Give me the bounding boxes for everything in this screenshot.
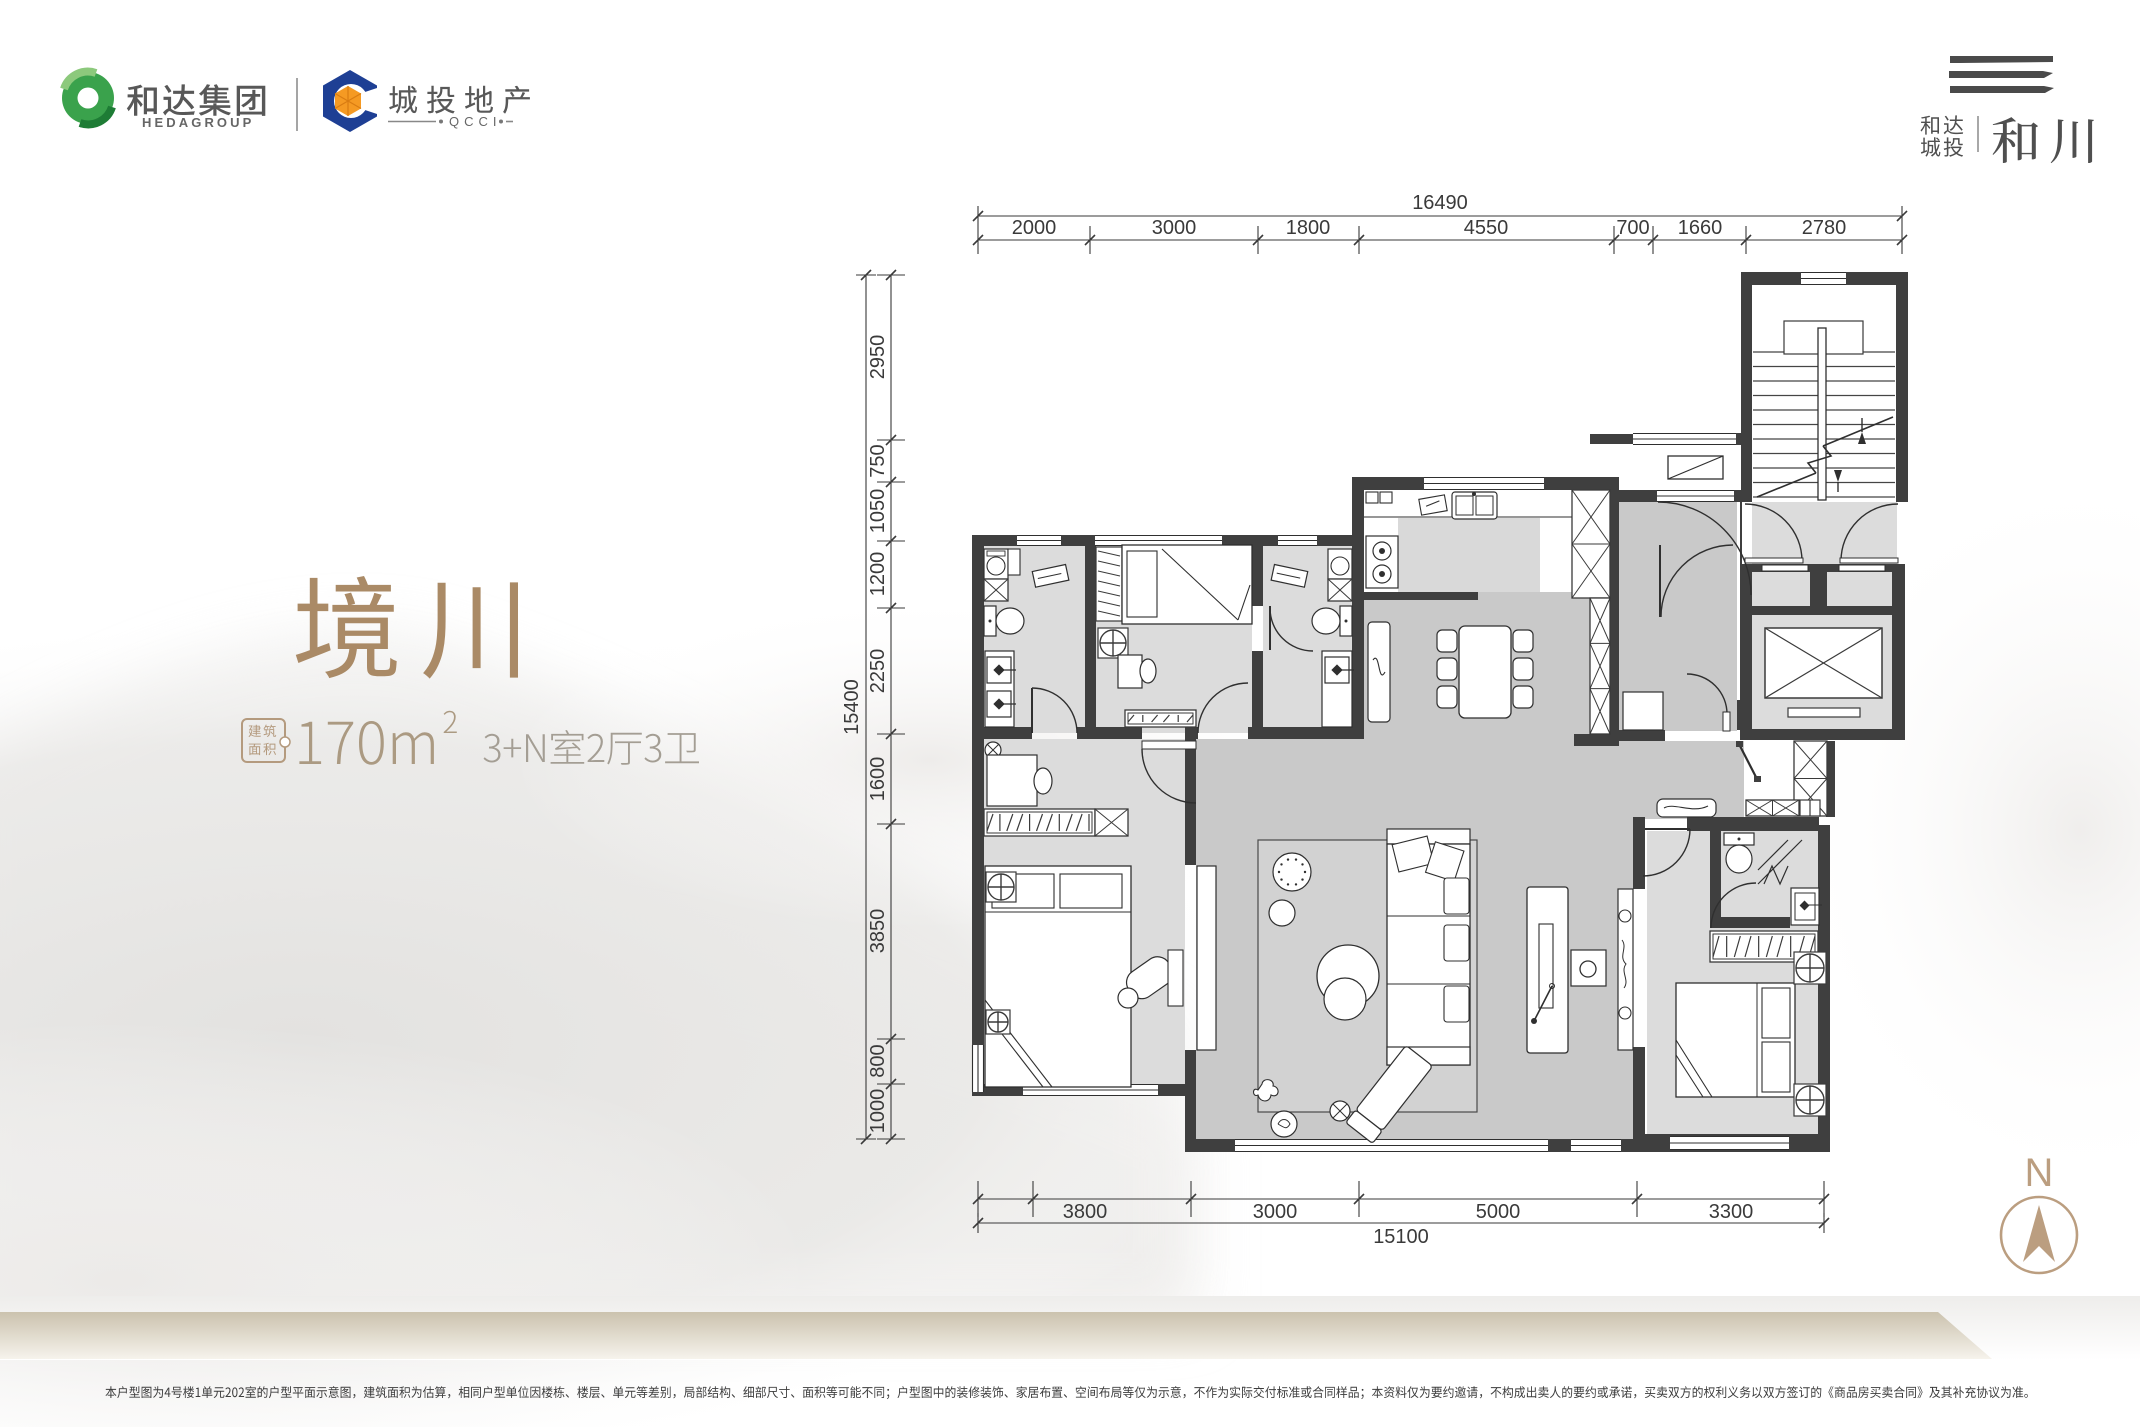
svg-text:15100: 15100 bbox=[1373, 1226, 1429, 1248]
svg-text:5000: 5000 bbox=[1476, 1201, 1521, 1223]
svg-text:2000: 2000 bbox=[1012, 217, 1057, 239]
svg-text:1800: 1800 bbox=[1286, 217, 1331, 239]
svg-text:N: N bbox=[2025, 1151, 2054, 1195]
svg-text:3300: 3300 bbox=[1709, 1201, 1754, 1223]
svg-text:HEDAGROUP: HEDAGROUP bbox=[142, 115, 254, 130]
svg-text:1000: 1000 bbox=[867, 1089, 889, 1134]
svg-text:15400: 15400 bbox=[841, 679, 863, 735]
svg-text:800: 800 bbox=[867, 1044, 889, 1077]
svg-text:1200: 1200 bbox=[867, 552, 889, 597]
svg-text:3850: 3850 bbox=[867, 909, 889, 954]
svg-text:4550: 4550 bbox=[1464, 217, 1509, 239]
svg-text:3800: 3800 bbox=[1063, 1201, 1108, 1223]
svg-text:1050: 1050 bbox=[867, 489, 889, 534]
svg-text:16490: 16490 bbox=[1412, 192, 1468, 214]
svg-text:QCCI: QCCI bbox=[449, 114, 502, 129]
svg-text:2950: 2950 bbox=[867, 335, 889, 380]
svg-text:2780: 2780 bbox=[1802, 217, 1847, 239]
svg-text:2250: 2250 bbox=[867, 649, 889, 694]
svg-text:700: 700 bbox=[1616, 217, 1649, 239]
svg-text:750: 750 bbox=[867, 444, 889, 477]
svg-text:1600: 1600 bbox=[867, 757, 889, 802]
svg-text:1660: 1660 bbox=[1678, 217, 1723, 239]
svg-text:3000: 3000 bbox=[1253, 1201, 1298, 1223]
svg-text:3000: 3000 bbox=[1152, 217, 1197, 239]
